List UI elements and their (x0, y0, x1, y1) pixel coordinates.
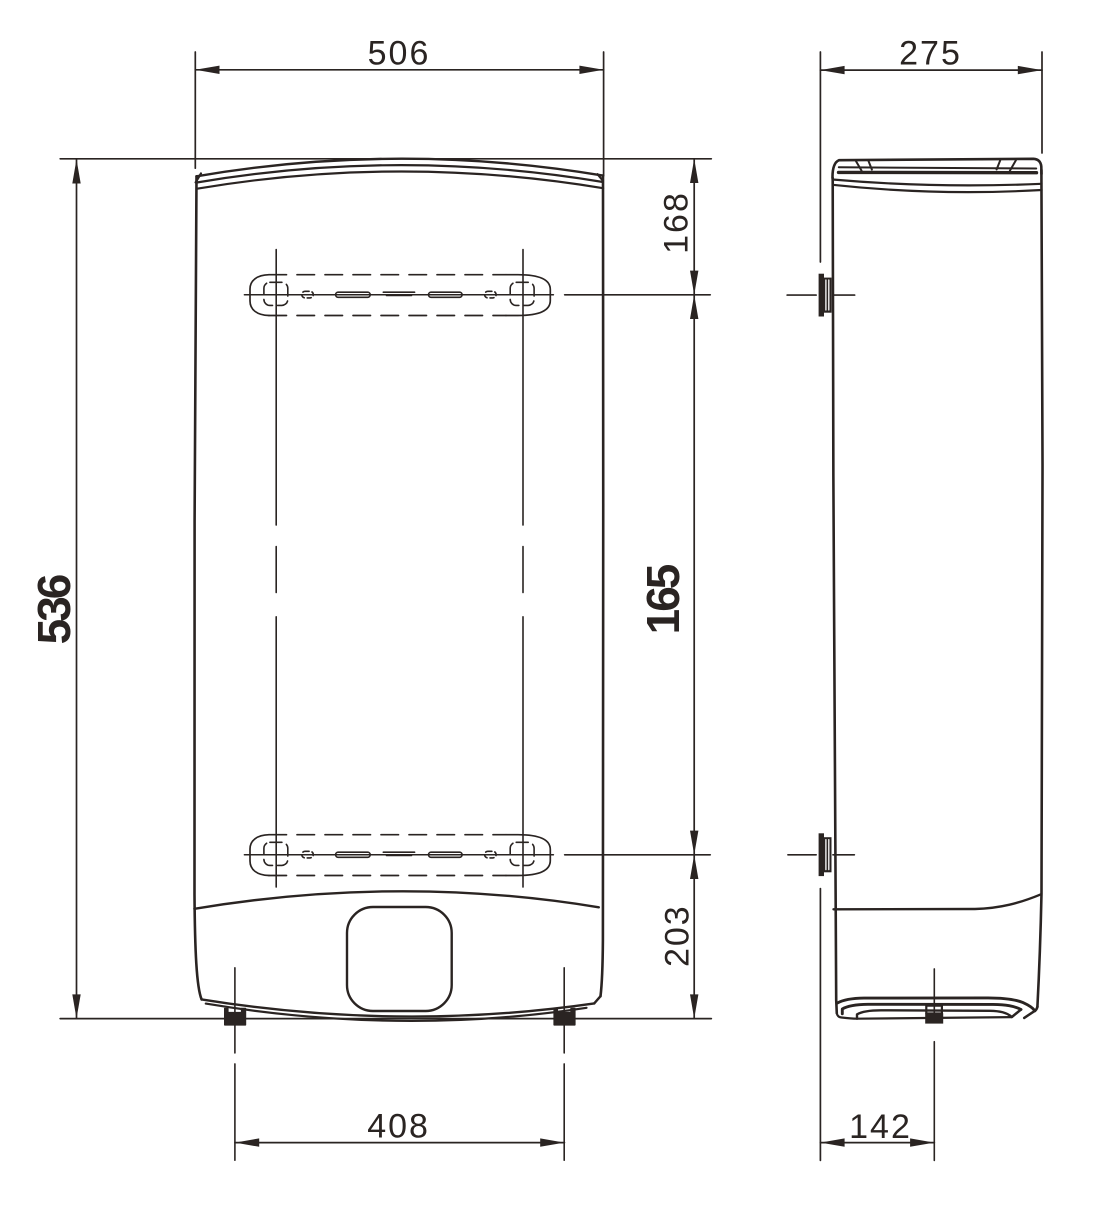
svg-text:142: 142 (849, 1108, 912, 1146)
svg-text:408: 408 (367, 1108, 430, 1146)
svg-text:168: 168 (658, 191, 696, 254)
svg-text:165: 165 (637, 564, 689, 634)
svg-text:275: 275 (899, 35, 962, 73)
svg-text:203: 203 (658, 904, 696, 967)
svg-text:506: 506 (368, 35, 431, 73)
svg-text:536: 536 (28, 575, 80, 644)
